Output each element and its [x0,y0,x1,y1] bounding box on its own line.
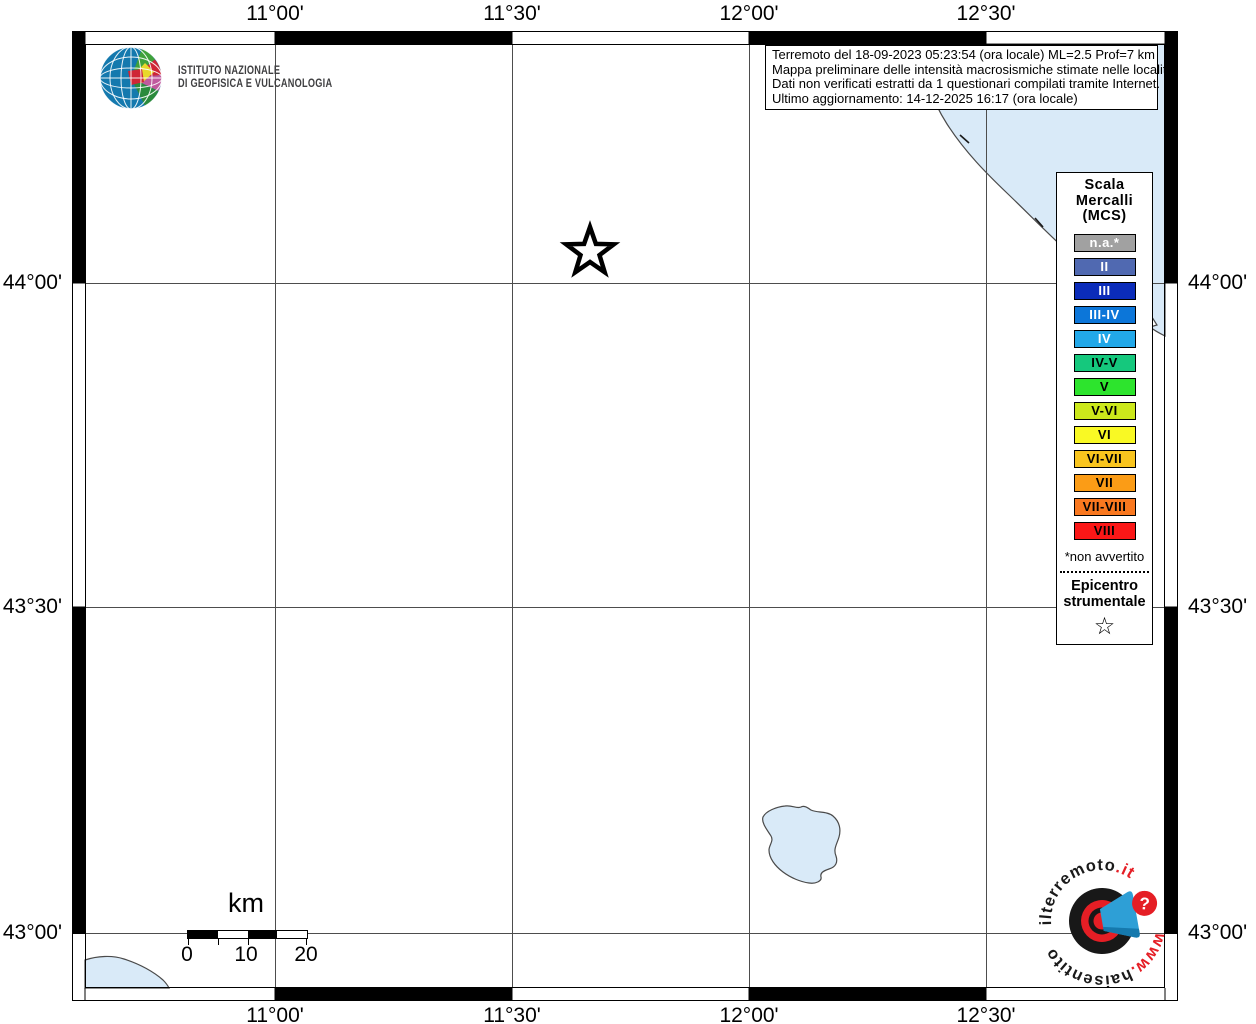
legend-epicenter-line1: Epicentro [1057,578,1152,594]
lake [763,806,840,883]
legend-swatch-vi-vii: VI-VII [1074,450,1136,468]
axis-label-top-1: 11°00' [246,2,304,26]
axis-label-bottom-4: 12°30' [956,1004,1015,1024]
legend-swatch-iii: III [1074,282,1136,300]
legend-swatch-na: n.a.* [1074,234,1136,252]
legend-title-line1: Scala [1057,178,1152,194]
mercalli-scale-legend: Scala Mercalli (MCS) n.a.* II III III-IV… [1056,172,1153,645]
legend-title: Scala Mercalli (MCS) [1057,178,1152,225]
event-info-line1: Terremoto del 18-09-2023 05:23:54 (ora l… [772,48,1151,63]
sea-area-southwest [85,956,169,988]
legend-swatch-list: n.a.* II III III-IV IV IV-V V V-VI VI VI… [1057,234,1152,540]
scale-bar-label-20: 20 [294,943,317,967]
ingv-logo-text: ISTITUTO NAZIONALE DI GEOFISICA E VULCAN… [178,65,332,92]
legend-divider [1060,571,1149,573]
scale-bar-tick [218,939,219,945]
ingv-logo: ISTITUTO NAZIONALE DI GEOFISICA E VULCAN… [98,45,371,111]
scale-bar-label-10: 10 [234,943,257,967]
scale-bar-unit: km [228,888,264,919]
axis-label-bottom-2: 11°30' [483,1004,541,1024]
scale-bar [187,930,308,939]
event-info-line2: Mappa preliminare delle intensità macros… [772,63,1151,78]
legend-epicenter-label: Epicentro strumentale [1057,578,1152,610]
question-mark-text: ? [1139,894,1151,914]
macroseismic-map-page: 11°00' 11°30' 12°00' 12°30' 11°00' 11°30… [0,0,1256,1024]
legend-title-line2: Mercalli [1057,194,1152,210]
event-info-box: Terremoto del 18-09-2023 05:23:54 (ora l… [765,45,1158,110]
legend-swatch-vii-viii: VII-VIII [1074,498,1136,516]
axis-label-top-4: 12°30' [956,2,1015,26]
legend-swatch-vi: VI [1074,426,1136,444]
axis-label-left-1: 44°00' [0,271,62,295]
scale-bar-segment [248,931,278,938]
legend-star-icon: ☆ [1057,613,1152,639]
axis-label-top-2: 11°30' [483,2,541,26]
legend-swatch-vii: VII [1074,474,1136,492]
ingv-name-line2: DI GEOFISICA E VULCANOLOGIA [178,78,332,92]
legend-swatch-ii: II [1074,258,1136,276]
axis-label-right-1: 44°00' [1188,271,1247,295]
legend-swatch-iii-iv: III-IV [1074,306,1136,324]
axis-label-left-3: 43°00' [0,921,62,945]
axis-label-bottom-1: 11°00' [246,1004,304,1024]
haisentitoilterremoto-logo: ? ilterremoto.it www.haisentito [1038,857,1168,987]
legend-epicenter-line2: strumentale [1057,594,1152,610]
event-info-line3: Dati non verificati estratti da 1 questi… [772,77,1151,92]
axis-label-right-2: 43°30' [1188,595,1247,619]
event-info-line4: Ultimo aggiornamento: 14-12-2025 16:17 (… [772,92,1151,107]
axis-label-top-3: 12°00' [719,2,778,26]
scale-bar-label-0: 0 [181,943,193,967]
legend-footnote: *non avvertito [1057,549,1152,564]
axis-label-left-2: 43°30' [0,595,62,619]
axis-label-bottom-3: 12°00' [719,1004,778,1024]
ingv-name-line1: ISTITUTO NAZIONALE [178,65,332,79]
axis-label-right-3: 43°00' [1188,921,1247,945]
scale-bar-segment [188,931,218,938]
legend-title-line3: (MCS) [1057,209,1152,225]
legend-swatch-viii: VIII [1074,522,1136,540]
legend-swatch-v: V [1074,378,1136,396]
ingv-globe-icon [98,45,164,111]
legend-swatch-v-vi: V-VI [1074,402,1136,420]
legend-swatch-iv: IV [1074,330,1136,348]
legend-swatch-iv-v: IV-V [1074,354,1136,372]
epicenter-star-marker [566,227,614,272]
